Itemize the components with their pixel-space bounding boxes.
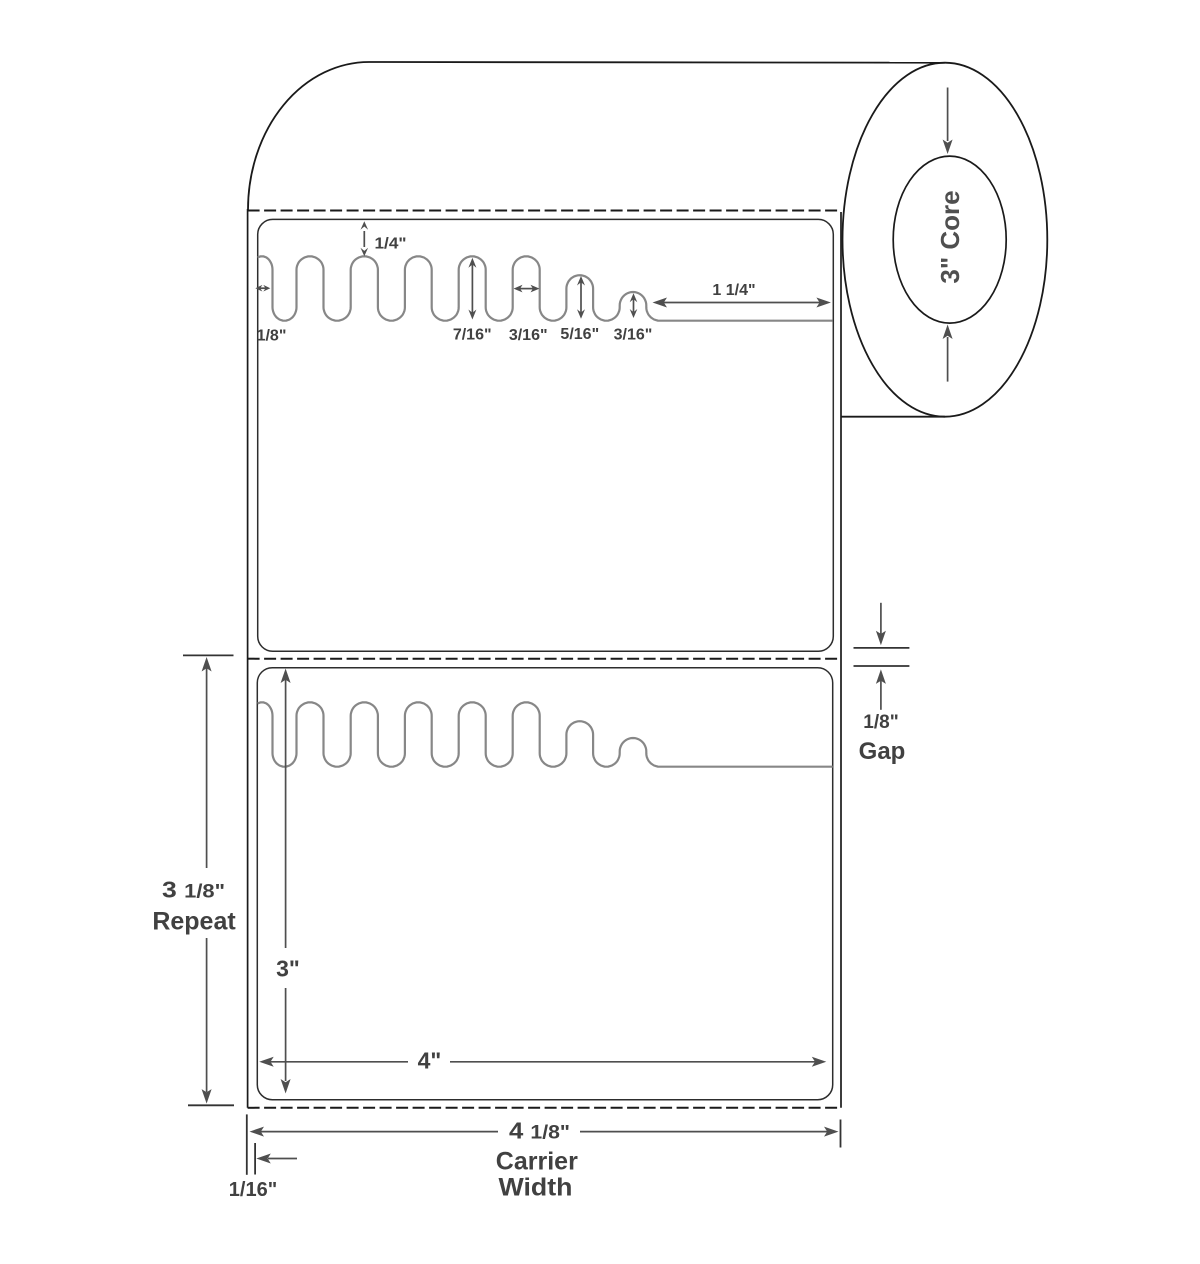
svg-text:1/8": 1/8" (863, 712, 898, 733)
svg-text:1 1/4": 1 1/4" (712, 282, 755, 299)
svg-text:3" Core: 3" Core (935, 190, 965, 283)
svg-text:3": 3" (276, 956, 300, 982)
svg-text:5/16": 5/16" (560, 326, 599, 343)
svg-text:4": 4" (418, 1048, 442, 1074)
svg-text:Repeat: Repeat (152, 908, 236, 936)
svg-text:3/16": 3/16" (509, 327, 548, 344)
svg-text:Carrier: Carrier (496, 1148, 578, 1176)
svg-text:Width: Width (499, 1173, 573, 1201)
svg-text:1/8": 1/8" (257, 327, 287, 344)
svg-text:Gap: Gap (859, 738, 906, 765)
svg-text:3/16": 3/16" (614, 327, 653, 344)
svg-text:7/16": 7/16" (453, 327, 492, 344)
svg-text:1/4": 1/4" (375, 236, 407, 253)
svg-text:1/16": 1/16" (229, 1179, 277, 1201)
